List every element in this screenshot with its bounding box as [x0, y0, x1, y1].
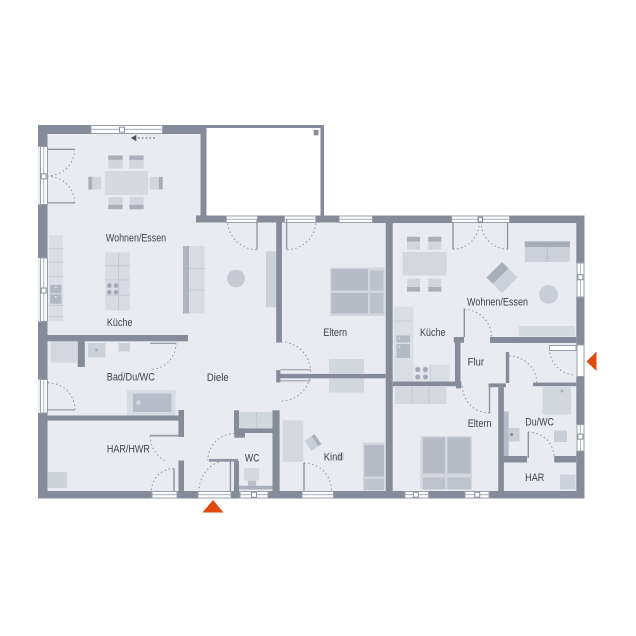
- svg-text:Wohnen/Essen: Wohnen/Essen: [106, 233, 166, 245]
- svg-text:Flur: Flur: [468, 357, 485, 369]
- svg-text:HAR: HAR: [525, 472, 544, 484]
- svg-text:Küche: Küche: [107, 317, 133, 329]
- svg-text:Eltern: Eltern: [323, 327, 347, 339]
- svg-text:Diele: Diele: [207, 372, 229, 384]
- svg-text:WC: WC: [245, 452, 259, 464]
- svg-text:Wohnen/Essen: Wohnen/Essen: [467, 297, 528, 309]
- svg-text:Bad/Du/WC: Bad/Du/WC: [107, 372, 155, 384]
- svg-text:HAR/HWR: HAR/HWR: [107, 444, 150, 456]
- svg-text:Kind: Kind: [324, 452, 343, 464]
- svg-text:Küche: Küche: [420, 327, 446, 339]
- svg-text:Du/WC: Du/WC: [525, 417, 554, 429]
- svg-text:Eltern: Eltern: [468, 418, 492, 430]
